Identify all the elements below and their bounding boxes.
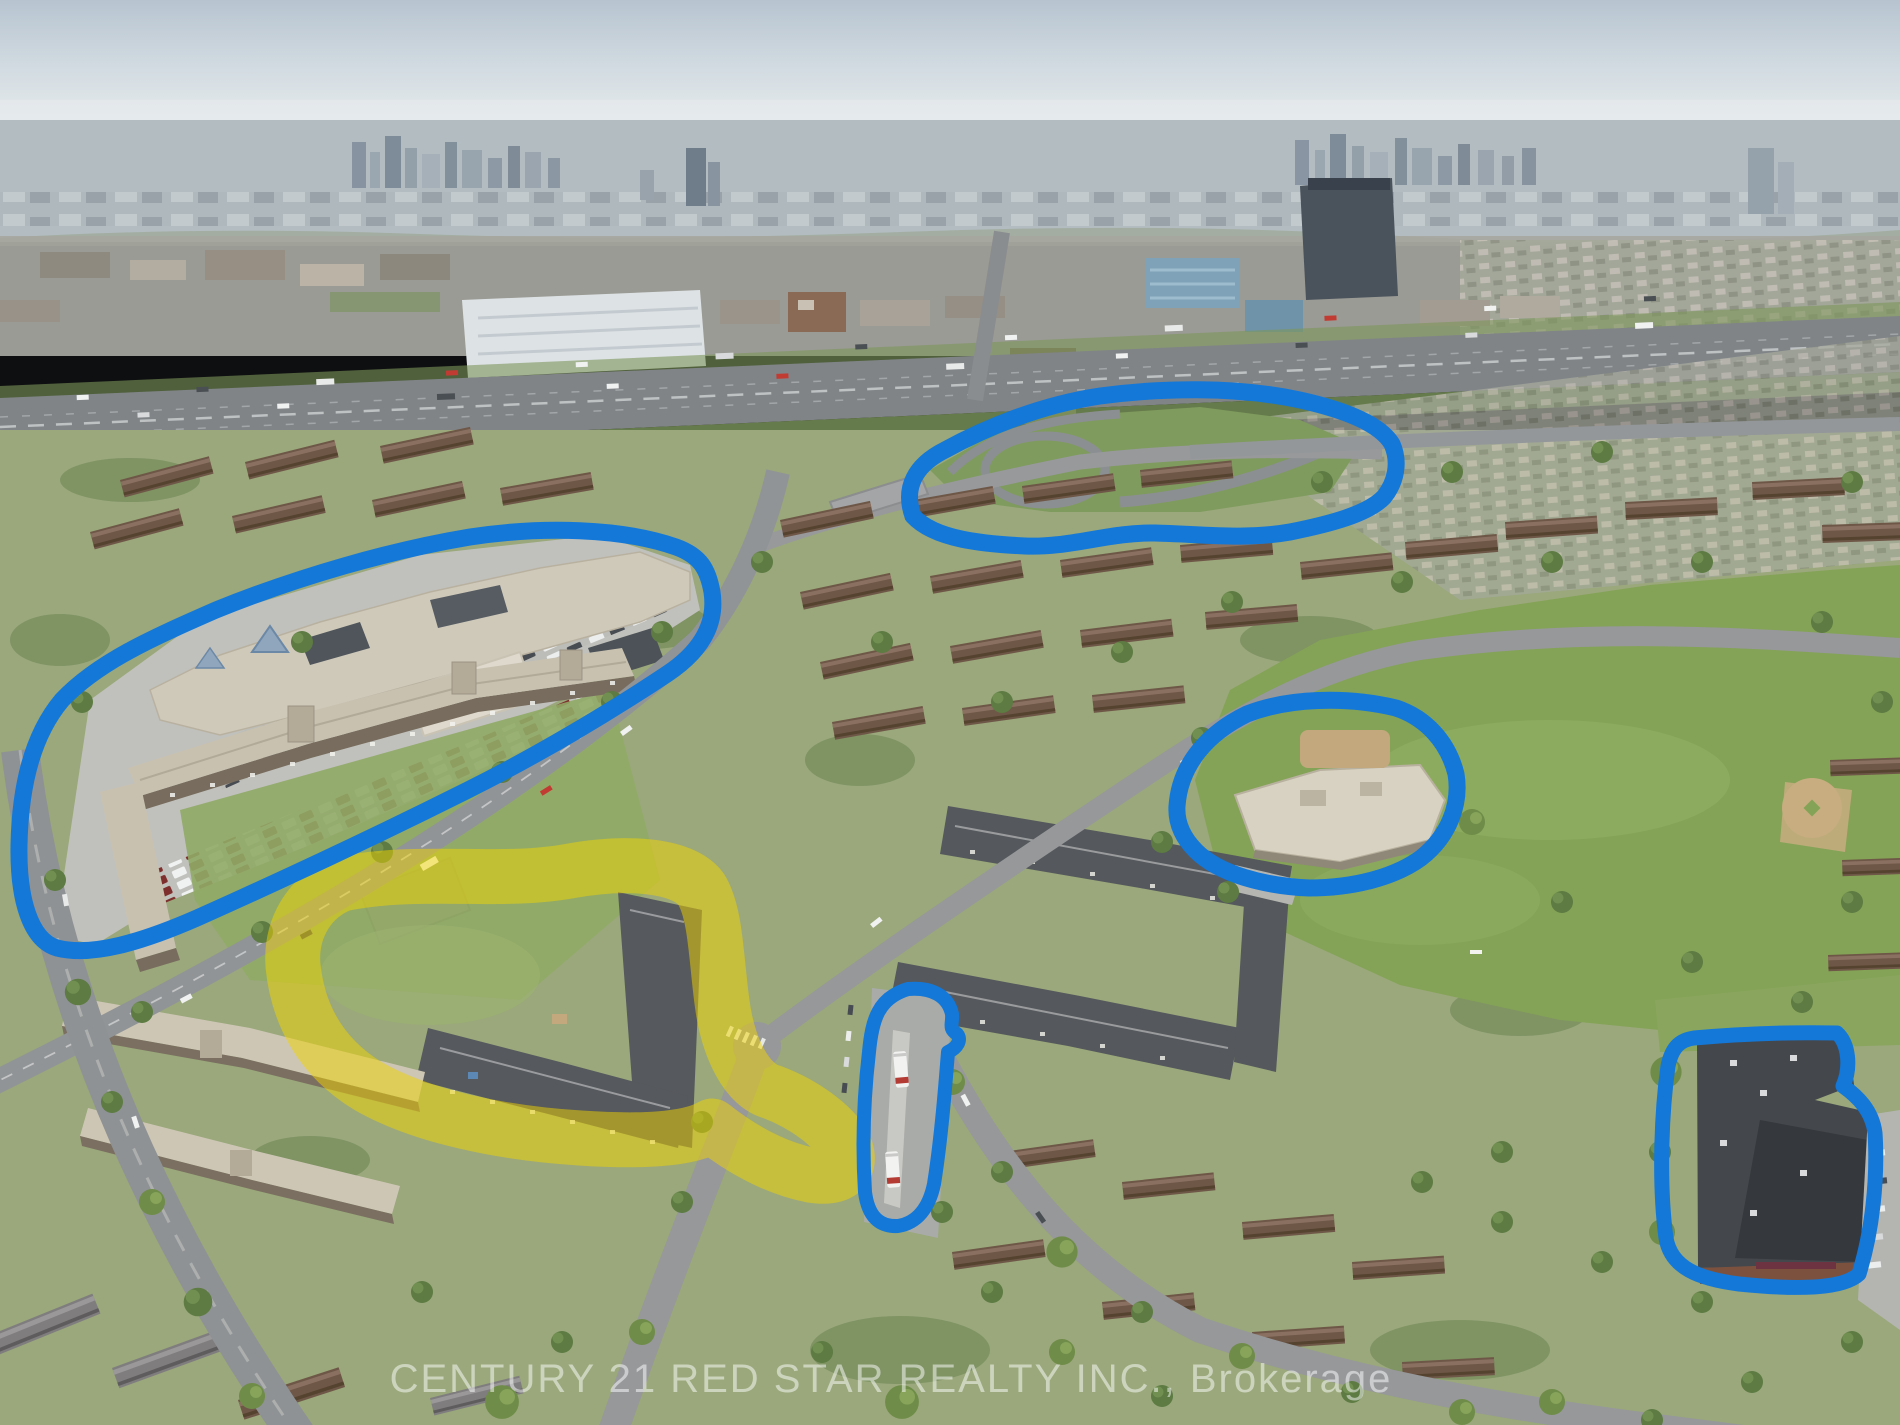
aerial-photo: CENTURY 21 RED STAR REALTY INC., Brokera… — [0, 0, 1900, 1425]
distant-city-skyline — [0, 120, 1900, 246]
baseball-diamond — [1780, 778, 1852, 852]
dark-tower — [1300, 178, 1398, 300]
playground — [1300, 730, 1390, 768]
sky — [0, 0, 1900, 136]
bus — [885, 1151, 900, 1188]
brokerage-watermark: CENTURY 21 RED STAR REALTY INC., Brokera… — [390, 1357, 1393, 1401]
